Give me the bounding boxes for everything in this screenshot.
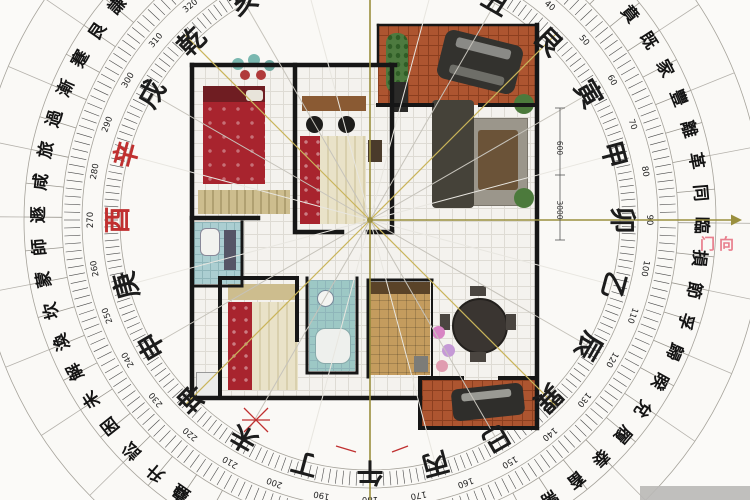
mountain-240: 申 xyxy=(132,326,172,365)
watermark-bar xyxy=(640,486,750,500)
arrow-head xyxy=(731,215,742,226)
svg-text:600: 600 xyxy=(555,141,564,156)
mountain-195: 丁 xyxy=(288,444,322,481)
mountain-285: 辛 xyxy=(108,138,146,172)
svg-text:3000: 3000 xyxy=(555,200,564,219)
mountain-30: 丑 xyxy=(476,0,515,22)
compass-overlay: 6003000子癸丑艮寅甲卯乙辰巽巳丙午丁未坤申庚酉辛戌乾亥壬 xyxy=(0,0,750,500)
mountain-165: 丙 xyxy=(418,444,452,481)
mountain-210: 未 xyxy=(225,418,264,458)
mountain-60: 寅 xyxy=(568,74,609,113)
door-direction-label: 门向 xyxy=(700,233,738,254)
mountain-150: 巳 xyxy=(476,418,515,458)
dimension-labels: 6003000 xyxy=(555,141,564,220)
mountain-270: 酉 xyxy=(103,207,134,234)
mountain-255: 庚 xyxy=(108,268,146,302)
mountain-180: 午 xyxy=(357,456,384,488)
red-marks xyxy=(242,408,408,452)
fengshui-compass-floorplan: 0102030405060708090100110120130140150160… xyxy=(0,0,750,500)
mountain-90: 卯 xyxy=(606,207,637,234)
mountain-120: 辰 xyxy=(568,326,608,365)
mountain-300: 戌 xyxy=(132,75,172,114)
mountain-105: 乙 xyxy=(594,268,631,302)
mountain-75: 甲 xyxy=(594,138,631,172)
mountain-330: 亥 xyxy=(224,0,263,22)
walls xyxy=(192,25,537,428)
facing-axes xyxy=(367,0,742,500)
